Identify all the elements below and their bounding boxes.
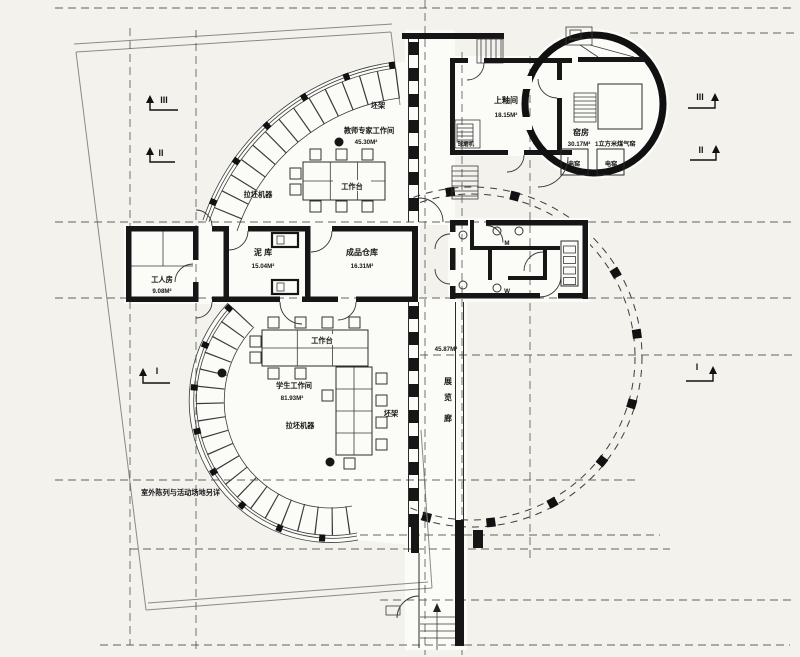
teacher-studio-area: 45.30M² [355, 139, 378, 146]
toilet-male-label: M [504, 240, 509, 247]
throwing-wheels-label-lower: 拉坯机器 [286, 421, 316, 430]
product-store-area: 16.31M² [351, 263, 374, 270]
glaze-room-name: 上釉间 [494, 95, 518, 105]
section-marker-right-1: I [696, 362, 699, 372]
gallery-area: 45.87M² [435, 346, 458, 353]
clay-rack-label-upper: 坯架 [371, 101, 386, 110]
section-marker-left-2: II [158, 148, 163, 158]
section-marker-right-3: III [696, 92, 704, 102]
throwing-wheel-dot [326, 458, 335, 467]
throwing-wheel-dot [335, 138, 344, 147]
toilet-female-label: W [504, 288, 510, 295]
gallery-char-3: 廊 [444, 413, 452, 423]
gallery-char-1: 展 [443, 377, 452, 386]
gas-kiln-note: 1立方米煤气窑 [595, 140, 636, 148]
floor-plan-page: M W 教师专家工作间 45.30M² 工作台 拉 [0, 0, 800, 657]
clay-store-name: 泥 库 [254, 247, 272, 257]
gallery-char-2: 览 [444, 392, 452, 402]
electric-kiln-label-1: 电窑 [568, 160, 580, 168]
student-studio-name: 学生工作间 [276, 381, 312, 390]
kiln-room-name: 窑房 [573, 127, 589, 137]
electric-kiln-label-2: 电窑 [605, 160, 617, 168]
floor-plan-drawing: M W 教师专家工作间 45.30M² 工作台 拉 [0, 0, 800, 657]
ball-mill-label: 球磨机 [458, 140, 475, 148]
outdoor-note: 室外陈列与活动场地另详 [141, 488, 220, 497]
student-studio-area: 81.93M² [281, 395, 304, 402]
section-marker-left-1: I [156, 366, 159, 376]
worktable-label-lower: 工作台 [311, 336, 333, 345]
product-store-name: 成品仓库 [346, 247, 378, 257]
throwing-wheels-label-upper: 拉坯机器 [244, 190, 274, 199]
teacher-studio-name: 教师专家工作间 [343, 126, 394, 135]
worktable-label-upper: 工作台 [341, 182, 363, 191]
glaze-room-area: 18.15M² [495, 112, 518, 119]
section-marker-left-3: III [160, 95, 168, 105]
clay-store-area: 15.04M² [252, 263, 275, 270]
clay-rack-label-lower: 坯架 [384, 409, 399, 418]
worker-room-name: 工人房 [151, 275, 173, 284]
throwing-wheel-dot [218, 369, 227, 378]
kiln-room-area: 30.17M² [568, 141, 591, 148]
section-marker-right-2: II [698, 145, 703, 155]
worker-room-area: 9.08M² [152, 288, 171, 295]
